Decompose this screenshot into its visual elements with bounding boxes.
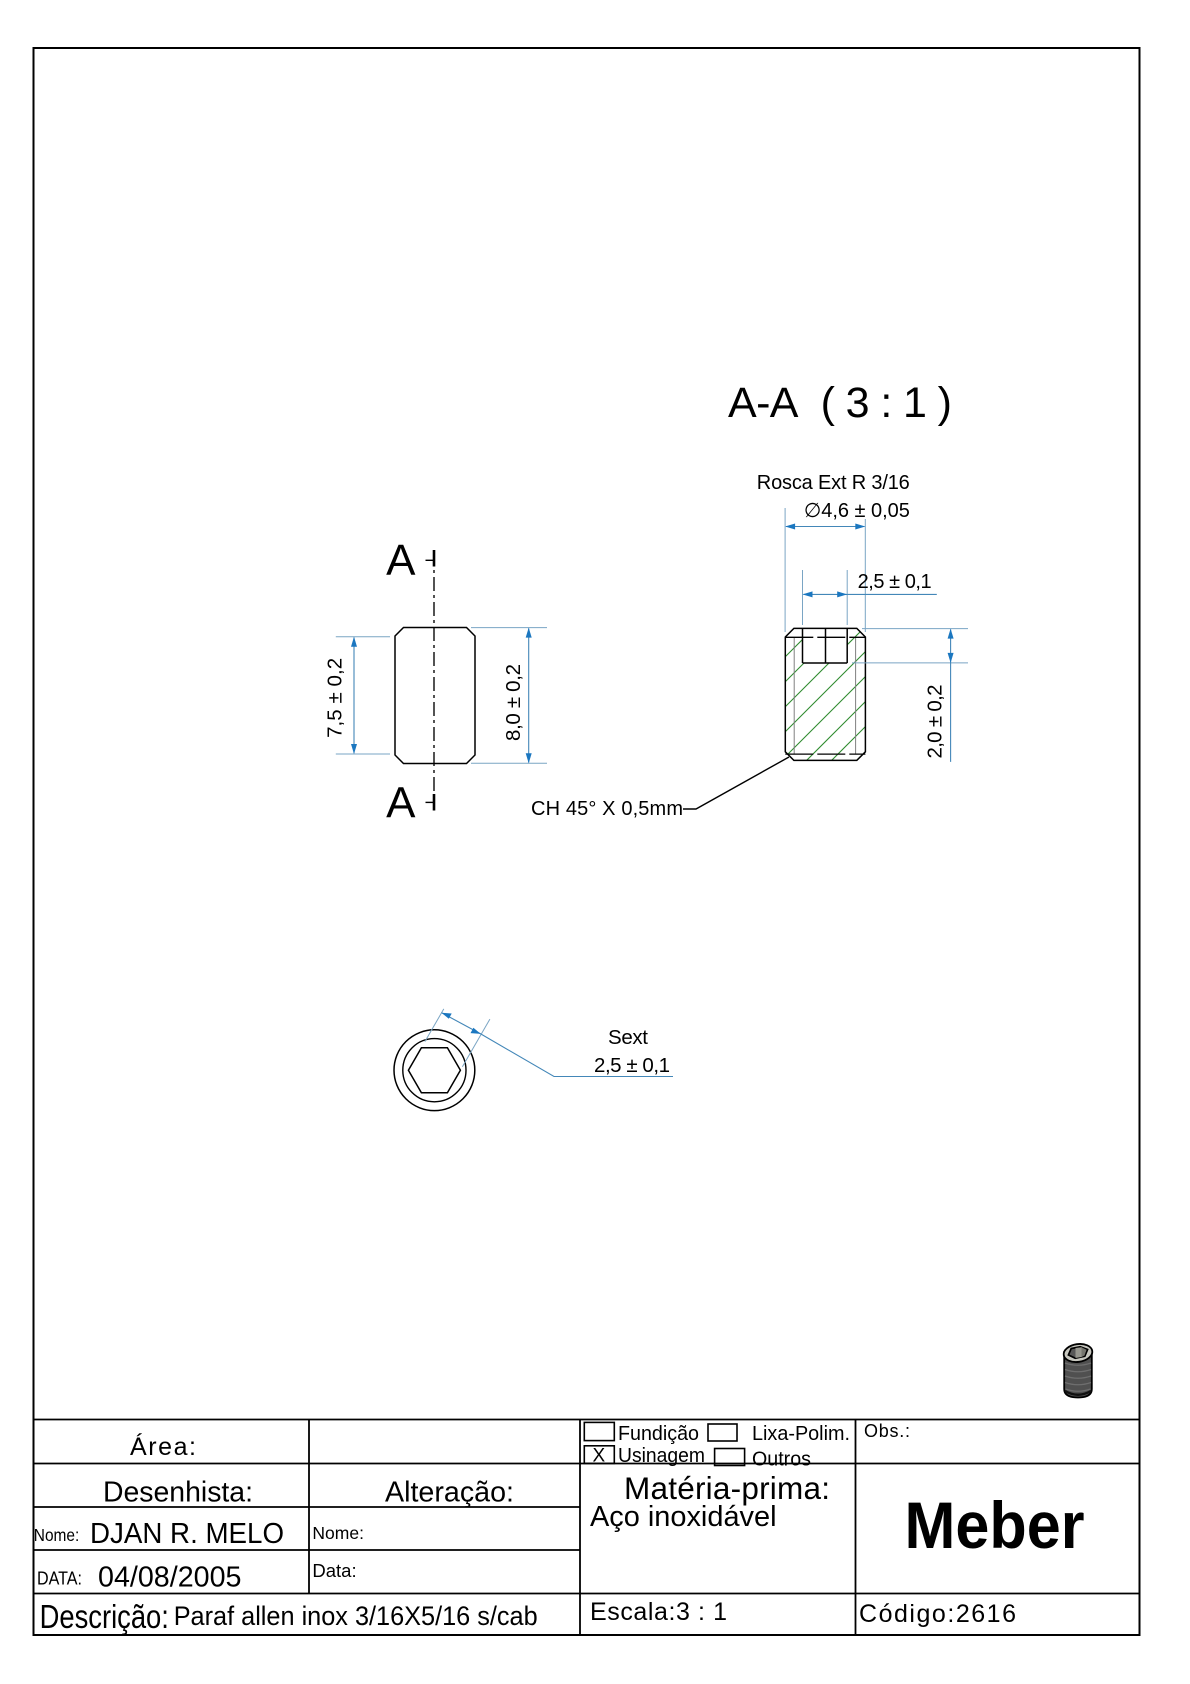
svg-text:2,5 ± 0,1: 2,5 ± 0,1 xyxy=(594,1054,670,1077)
svg-text:Rosca Ext R 3/16: Rosca Ext R 3/16 xyxy=(757,472,910,494)
svg-text:Nome:: Nome: xyxy=(312,1523,364,1543)
svg-text:Sext: Sext xyxy=(608,1026,648,1049)
svg-text:Área:: Área: xyxy=(130,1432,196,1461)
svg-text:Lixa-Polim.: Lixa-Polim. xyxy=(752,1422,850,1445)
svg-text:A: A xyxy=(386,536,416,585)
svg-text:CH 45° X 0,5mm: CH 45° X 0,5mm xyxy=(531,798,683,820)
svg-text:Meber: Meber xyxy=(905,1488,1085,1562)
svg-text:8,0 ± 0,2: 8,0 ± 0,2 xyxy=(502,664,525,741)
svg-text:Aço inoxidável: Aço inoxidável xyxy=(590,1501,777,1533)
svg-text:∅4,6 ± 0,05: ∅4,6 ± 0,05 xyxy=(804,500,910,522)
svg-text:Descrição:: Descrição: xyxy=(40,1598,169,1635)
svg-text:Escala:3 : 1: Escala:3 : 1 xyxy=(590,1598,727,1626)
svg-text:DATA:: DATA: xyxy=(37,1568,82,1588)
svg-text:Desenhista:: Desenhista: xyxy=(103,1477,253,1509)
svg-text:Data:: Data: xyxy=(312,1560,356,1581)
svg-text:7,5 ± 0,2: 7,5 ± 0,2 xyxy=(324,658,347,738)
svg-text:2,5 ± 0,1: 2,5 ± 0,1 xyxy=(858,571,932,593)
svg-text:DJAN R. MELO: DJAN R. MELO xyxy=(90,1518,284,1550)
svg-text:X: X xyxy=(593,1446,606,1467)
svg-text:Outros: Outros xyxy=(752,1448,811,1471)
svg-text:Alteração:: Alteração: xyxy=(385,1477,514,1509)
svg-text:Nome:: Nome: xyxy=(34,1525,80,1545)
svg-text:2,0 ± 0,2: 2,0 ± 0,2 xyxy=(924,685,947,759)
svg-text:Obs.:: Obs.: xyxy=(864,1421,910,1441)
svg-text:04/08/2005: 04/08/2005 xyxy=(98,1562,242,1594)
svg-text:Usinagem: Usinagem xyxy=(618,1444,705,1467)
svg-text:A-A ( 3 : 1 ): A-A ( 3 : 1 ) xyxy=(728,379,952,427)
svg-text:A: A xyxy=(386,779,416,828)
svg-text:Paraf allen inox 3/16X5/16 s/c: Paraf allen inox 3/16X5/16 s/cab xyxy=(174,1601,538,1631)
svg-text:Código:2616: Código:2616 xyxy=(859,1600,1016,1628)
svg-text:Fundição: Fundição xyxy=(618,1422,699,1445)
